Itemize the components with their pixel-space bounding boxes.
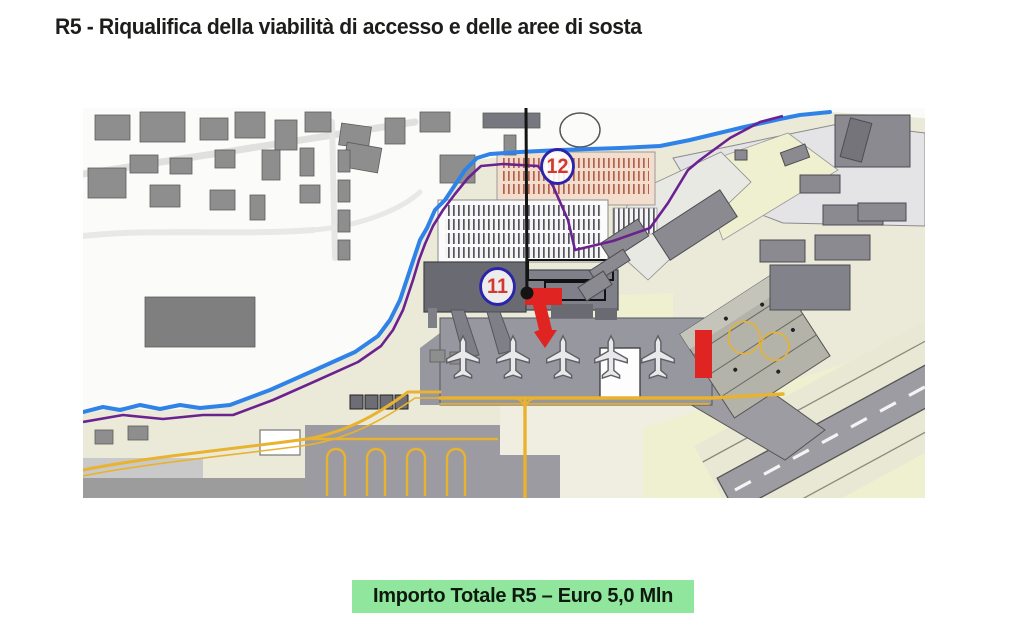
map-marker-11: 11 <box>479 267 516 306</box>
parking-lot-upper <box>497 152 655 205</box>
total-cost-banner: Importo Totale R5 – Euro 5,0 Mln <box>352 580 694 613</box>
page-title: R5 - Riqualifica della viabilità di acce… <box>55 14 727 40</box>
marker-11-label: 11 <box>487 275 508 299</box>
red-highlight-bar <box>695 330 712 378</box>
map-marker-12: 12 <box>540 148 575 185</box>
marker-12-label: 12 <box>547 155 569 179</box>
leader-dot <box>521 287 534 300</box>
